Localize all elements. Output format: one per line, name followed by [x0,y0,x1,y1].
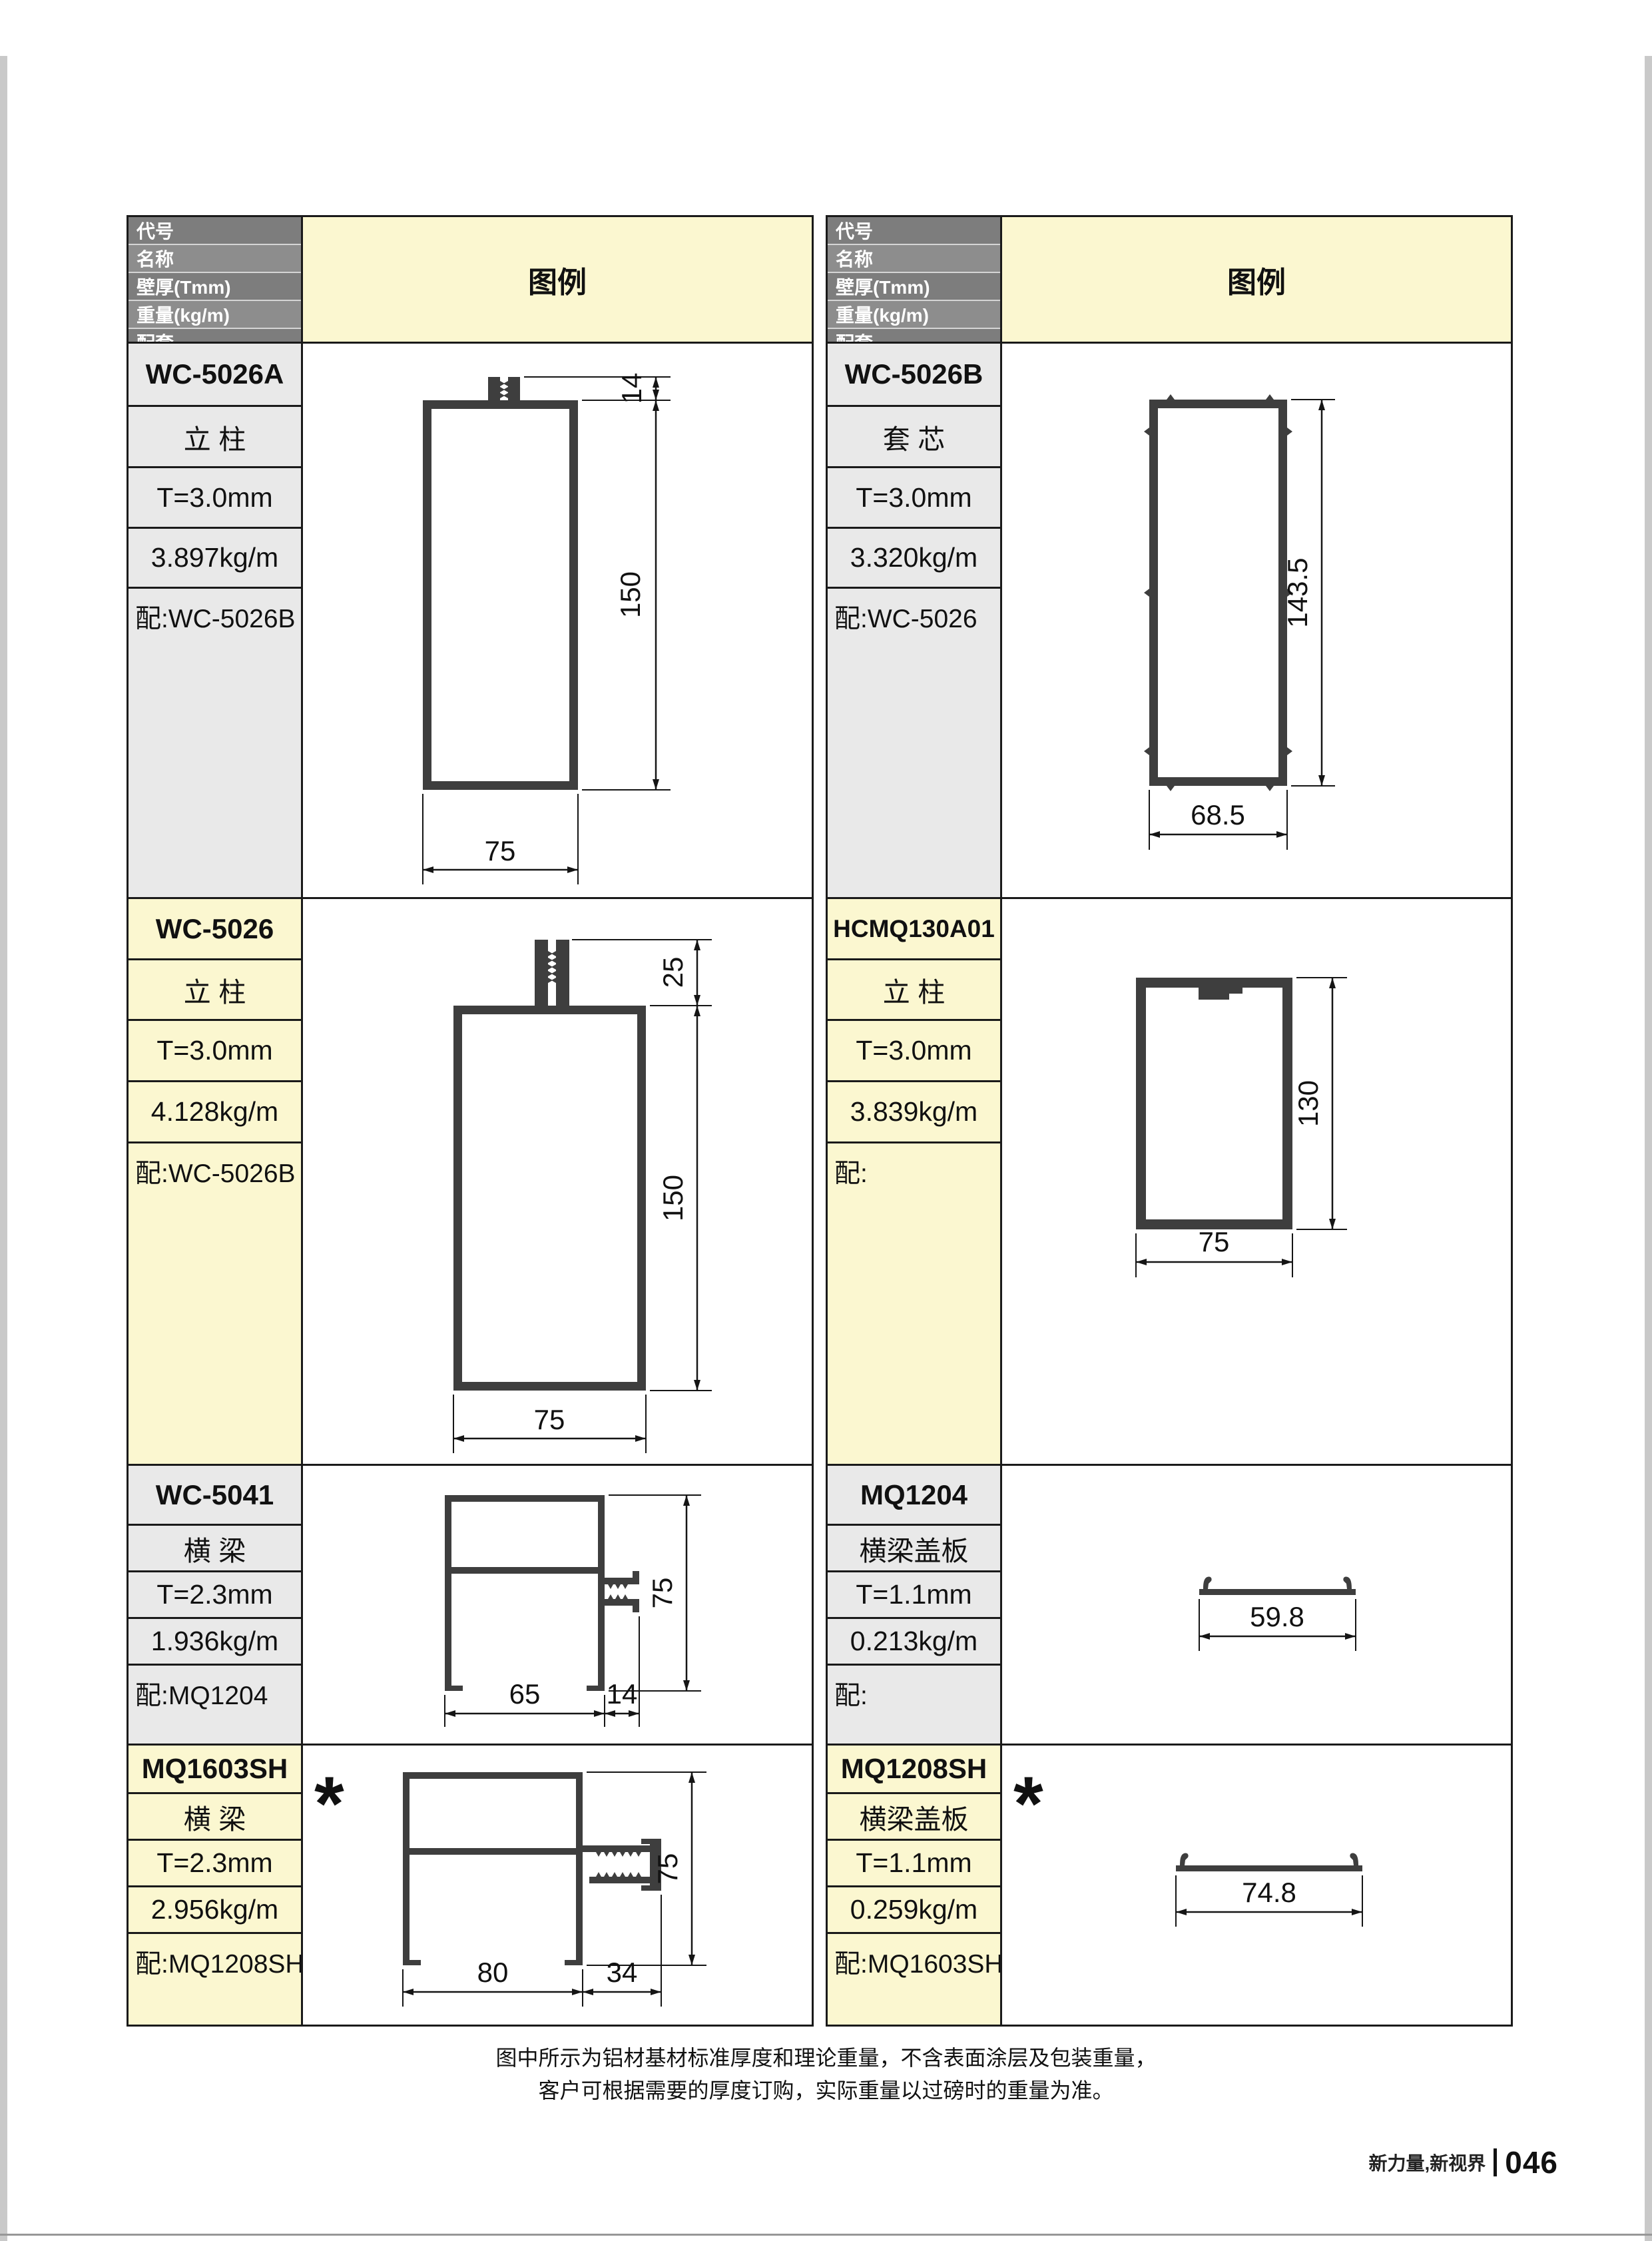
mq1204-profile-shape [1199,1576,1356,1595]
left-edge-strip [0,56,7,2241]
wc5041-dimensions: 75 65 14 [445,1495,701,1727]
mq1603sh-star-note: * [314,1766,344,1843]
header-name-label: 名称 [129,245,301,273]
hcmq130a01-drawing: 130 75 [1002,899,1511,1464]
mq1204-dimensions: 59.8 [1199,1599,1356,1651]
wc5026-code: WC-5026 [127,897,303,960]
wc5026b-thickness: T=3.0mm [826,466,1002,529]
dim-w1-label: 65 [509,1678,541,1710]
dim-width-label: 59.8 [1250,1601,1304,1632]
header-code-label: 代号 [129,217,301,245]
dim-height-label: 75 [647,1578,678,1609]
right-legend-header: 图例 [1000,215,1513,344]
mq1603sh-match: 配:MQ1208SH [127,1932,303,2027]
wc5026b-name: 套 芯 [826,405,1002,468]
mq1603sh-drawing: 75 80 34 [303,1746,812,2025]
header-thickness-label: 壁厚(Tmm) [828,273,1000,301]
wc5026-name: 立 柱 [127,958,303,1021]
wc5041-thickness: T=2.3mm [127,1570,303,1619]
mq1208sh-profile-shape [1176,1853,1362,1871]
wc5026b-match: 配:WC-5026 [826,587,1002,899]
wc5026b-drawing: 143.5 68.5 [1002,344,1511,897]
mq1208sh-code: MQ1208SH [826,1744,1002,1794]
dim-width-label: 68.5 [1191,799,1245,830]
mq1603sh-thickness: T=2.3mm [127,1839,303,1887]
dim-width-label: 75 [534,1404,565,1435]
dim-width-label: 75 [485,835,516,866]
hcmq130a01-weight: 3.839kg/m [826,1080,1002,1143]
page-number: 046 [1505,2144,1558,2180]
mq1603sh-profile-shape [403,1772,661,1965]
wc5026b-code: WC-5026B [826,342,1002,407]
footnote-line-2: 客户可根据需要的厚度订购，实际重量以过磅时的重量为准。 [0,2075,1652,2107]
wc5026a-match: 配:WC-5026B [127,587,303,899]
mq1204-weight: 0.213kg/m [826,1617,1002,1666]
dim-height-label: 75 [652,1853,683,1885]
mq1208sh-name: 横梁盖板 [826,1792,1002,1841]
wc5041-drawing: 75 65 14 [303,1466,812,1744]
brand-slogan: 新力量,新视界 [1368,2149,1486,2176]
right-edge-strip [1645,56,1652,2241]
page-footer: 新力量,新视界 046 [1368,2147,1558,2178]
wc5026a-code: WC-5026A [127,342,303,407]
wc5026-drawing: 25 150 75 [303,899,812,1464]
wc5026a-weight: 3.897kg/m [127,527,303,589]
wc5026a-drawing: 14 150 75 [303,344,812,897]
mq1208sh-weight: 0.259kg/m [826,1885,1002,1934]
mq1204-drawing: 59.8 [1002,1466,1511,1744]
wc5026-match: 配:WC-5026B [127,1141,303,1466]
left-header-labels: 代号 名称 壁厚(Tmm) 重量(kg/m) 配套 [127,215,303,344]
mq1204-name: 横梁盖板 [826,1524,1002,1572]
wc5026b-weight: 3.320kg/m [826,527,1002,589]
header-weight-label: 重量(kg/m) [828,301,1000,329]
wc5026a-dimensions: 14 150 75 [423,373,671,884]
mq1208sh-drawing: 74.8 [1002,1746,1511,2025]
mq1208sh-match: 配:MQ1603SH [826,1932,1002,2027]
dim-height-label: 130 [1292,1080,1324,1127]
dim-width-label: 74.8 [1242,1877,1296,1908]
mq1204-thickness: T=1.1mm [826,1570,1002,1619]
bottom-rule [0,2234,1652,2236]
header-weight-label: 重量(kg/m) [129,301,301,329]
dim-width-label: 75 [1199,1226,1230,1257]
hcmq130a01-name: 立 柱 [826,958,1002,1021]
dim-height-label: 150 [615,571,646,618]
mq1603sh-code: MQ1603SH [127,1744,303,1794]
wc5026-dimensions: 25 150 75 [453,940,712,1453]
wc5026a-name: 立 柱 [127,405,303,468]
hcmq130a01-code: HCMQ130A01 [826,897,1002,960]
wc5041-weight: 1.936kg/m [127,1617,303,1666]
wc5041-match: 配:MQ1204 [127,1664,303,1746]
footnote-line-1: 图中所示为铝材基材标准厚度和理论重量，不含表面涂层及包装重量， [0,2042,1652,2075]
wc5026-thickness: T=3.0mm [127,1019,303,1082]
hcmq130a01-dimensions: 130 75 [1136,978,1347,1277]
mq1208sh-thickness: T=1.1mm [826,1839,1002,1887]
dim-tab-label: 14 [616,373,647,404]
hcmq130a01-thickness: T=3.0mm [826,1019,1002,1082]
wc5041-name: 横 梁 [127,1524,303,1572]
wc5026a-thickness: T=3.0mm [127,466,303,529]
left-legend-header: 图例 [301,215,814,344]
wc5041-profile-shape [445,1495,639,1691]
wc5026b-profile-shape [1144,394,1292,791]
mq1603sh-name: 横 梁 [127,1792,303,1841]
wc5041-code: WC-5041 [127,1464,303,1526]
header-code-label: 代号 [828,217,1000,245]
wc5026-weight: 4.128kg/m [127,1080,303,1143]
dim-w2-label: 34 [607,1957,638,1988]
wc5026a-profile-shape [423,377,578,790]
dim-w1-label: 80 [477,1957,509,1988]
mq1603sh-weight: 2.956kg/m [127,1885,303,1934]
mq1204-match: 配: [826,1664,1002,1746]
mq1204-code: MQ1204 [826,1464,1002,1526]
header-thickness-label: 壁厚(Tmm) [129,273,301,301]
header-name-label: 名称 [828,245,1000,273]
hcmq130a01-profile-shape [1136,978,1292,1229]
wc5026-profile-shape [453,940,646,1391]
dim-height-label: 143.5 [1282,557,1313,627]
mq1208sh-star-note: * [1013,1766,1043,1843]
right-header-labels: 代号 名称 壁厚(Tmm) 重量(kg/m) 配套 [826,215,1002,344]
dim-w2-label: 14 [607,1678,638,1710]
mq1208sh-dimensions: 74.8 [1176,1875,1362,1927]
hcmq130a01-match: 配: [826,1141,1002,1466]
footnote: 图中所示为铝材基材标准厚度和理论重量，不含表面涂层及包装重量， 客户可根据需要的… [0,2042,1652,2107]
dim-tab-label: 25 [657,957,688,988]
dim-height-label: 150 [657,1175,688,1221]
footer-divider [1494,2148,1497,2176]
